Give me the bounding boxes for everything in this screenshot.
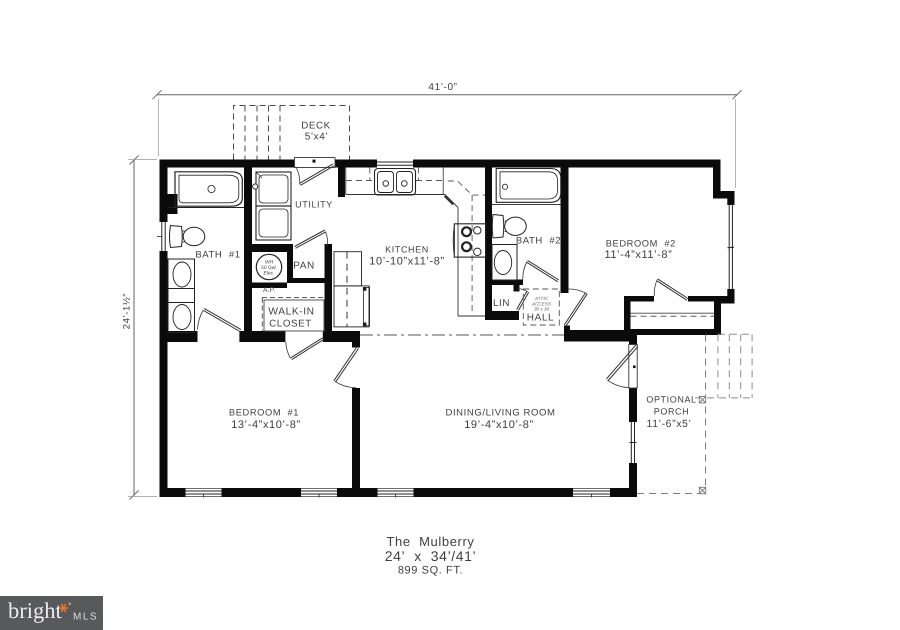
svg-text:HALL: HALL: [527, 313, 554, 324]
svg-text:MLS: MLS: [73, 612, 98, 623]
svg-text:24’-1½”: 24’-1½”: [122, 293, 133, 329]
svg-text:Elec.: Elec.: [263, 271, 274, 277]
svg-text:WALK-IN: WALK-IN: [268, 307, 314, 318]
svg-text:11’-6”x5’: 11’-6”x5’: [647, 418, 692, 430]
svg-text:The Mulberry: The Mulberry: [387, 534, 475, 549]
svg-text:LIN: LIN: [493, 298, 510, 309]
svg-text:BEDROOM #1: BEDROOM #1: [229, 408, 299, 418]
svg-text:DINING/LIVING ROOM: DINING/LIVING ROOM: [445, 408, 555, 419]
svg-text:24’ x 34’/41’: 24’ x 34’/41’: [385, 548, 477, 564]
svg-text:KITCHEN: KITCHEN: [385, 245, 429, 255]
svg-text:10’-10”x11’-8”: 10’-10”x11’-8”: [369, 256, 444, 268]
svg-text:13’-4”x10’-8”: 13’-4”x10’-8”: [231, 419, 301, 431]
svg-text:BATH #2: BATH #2: [516, 236, 561, 247]
svg-text:DECK: DECK: [301, 121, 331, 132]
svg-text:41’-0”: 41’-0”: [428, 82, 457, 93]
svg-text:BATH #1: BATH #1: [195, 250, 240, 261]
svg-text:30 x 30: 30 x 30: [534, 307, 550, 312]
svg-text:BEDROOM #2: BEDROOM #2: [606, 239, 676, 249]
svg-text:PORCH: PORCH: [654, 407, 690, 417]
svg-text:CLOSET: CLOSET: [269, 319, 312, 330]
svg-text:ATTIC: ATTIC: [534, 296, 549, 301]
svg-text:899 SQ. FT.: 899 SQ. FT.: [398, 565, 463, 577]
svg-text:UTILITY: UTILITY: [295, 200, 333, 210]
svg-text:OPTIONAL: OPTIONAL: [646, 395, 696, 405]
svg-text:PAN: PAN: [293, 261, 315, 272]
svg-text:5’x4’: 5’x4’: [305, 132, 329, 143]
svg-text:bright: bright: [8, 598, 62, 623]
svg-text:19’-4”x10’-8”: 19’-4”x10’-8”: [464, 419, 534, 431]
svg-text:A.P.: A.P.: [263, 287, 275, 294]
svg-text:11’-4”x11’-8”: 11’-4”x11’-8”: [604, 249, 672, 261]
